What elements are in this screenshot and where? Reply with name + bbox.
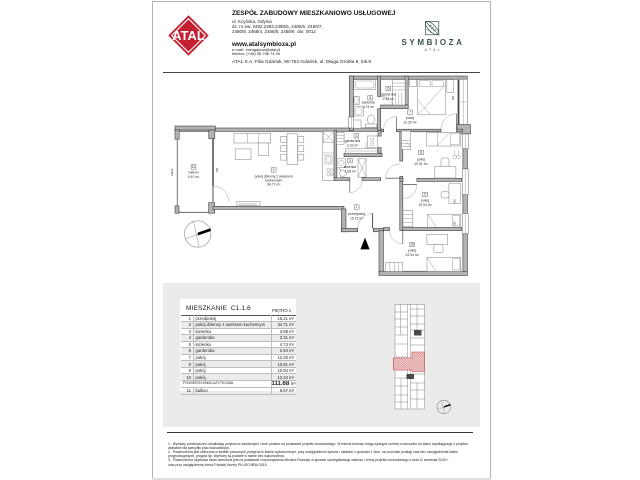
svg-text:4: 4 xyxy=(355,134,357,138)
svg-text:7: 7 xyxy=(409,110,411,114)
svg-text:900: 900 xyxy=(216,167,219,172)
svg-text:ATAL: ATAL xyxy=(425,48,443,52)
svg-text:garderoba: garderoba xyxy=(345,139,361,143)
svg-text:900: 900 xyxy=(454,199,457,204)
svg-text:10.94 m²: 10.94 m² xyxy=(418,203,432,207)
svg-text:10.91 m²: 10.91 m² xyxy=(414,162,428,166)
svg-text:34.71 m²: 34.71 m² xyxy=(267,183,281,187)
svg-text:balkon: balkon xyxy=(171,168,174,176)
svg-text:łazienka: łazienka xyxy=(344,165,357,169)
svg-text:4.74 m²: 4.74 m² xyxy=(363,105,375,109)
svg-text:2: 2 xyxy=(273,168,275,172)
svg-text:950: 950 xyxy=(452,95,455,100)
svg-text:5: 5 xyxy=(369,96,371,100)
svg-text:3.68 m²: 3.68 m² xyxy=(344,169,356,173)
svg-text:łazienka: łazienka xyxy=(362,101,375,105)
svg-text:10: 10 xyxy=(410,243,414,247)
svg-text:balkon: balkon xyxy=(189,171,199,175)
svg-text:15.21 m²: 15.21 m² xyxy=(350,217,364,221)
svg-text:3: 3 xyxy=(349,159,351,163)
svg-text:900: 900 xyxy=(454,221,457,226)
svg-text:11: 11 xyxy=(192,165,196,169)
svg-text:pokój: pokój xyxy=(421,198,429,202)
svg-text:8: 8 xyxy=(420,151,422,155)
svg-text:3.31 m²: 3.31 m² xyxy=(347,143,359,147)
svg-text:garderoba: garderoba xyxy=(381,92,397,96)
svg-text:pokój: pokój xyxy=(417,157,425,161)
svg-text:1: 1 xyxy=(356,205,358,209)
svg-text:13.34 m²: 13.34 m² xyxy=(405,253,419,257)
svg-text:przedpokój: przedpokój xyxy=(348,212,365,216)
svg-text:9: 9 xyxy=(424,193,426,197)
svg-text:SYMBIOZA: SYMBIOZA xyxy=(401,38,464,47)
svg-text:6: 6 xyxy=(387,87,389,91)
svg-text:2.54 m²: 2.54 m² xyxy=(383,97,395,101)
svg-text:ATAL: ATAL xyxy=(172,28,205,43)
svg-text:pokój: pokój xyxy=(408,249,416,253)
svg-text:9.67 m²: 9.67 m² xyxy=(188,175,200,179)
svg-text:12.30 m²: 12.30 m² xyxy=(403,121,417,125)
svg-text:pokój: pokój xyxy=(406,116,414,120)
